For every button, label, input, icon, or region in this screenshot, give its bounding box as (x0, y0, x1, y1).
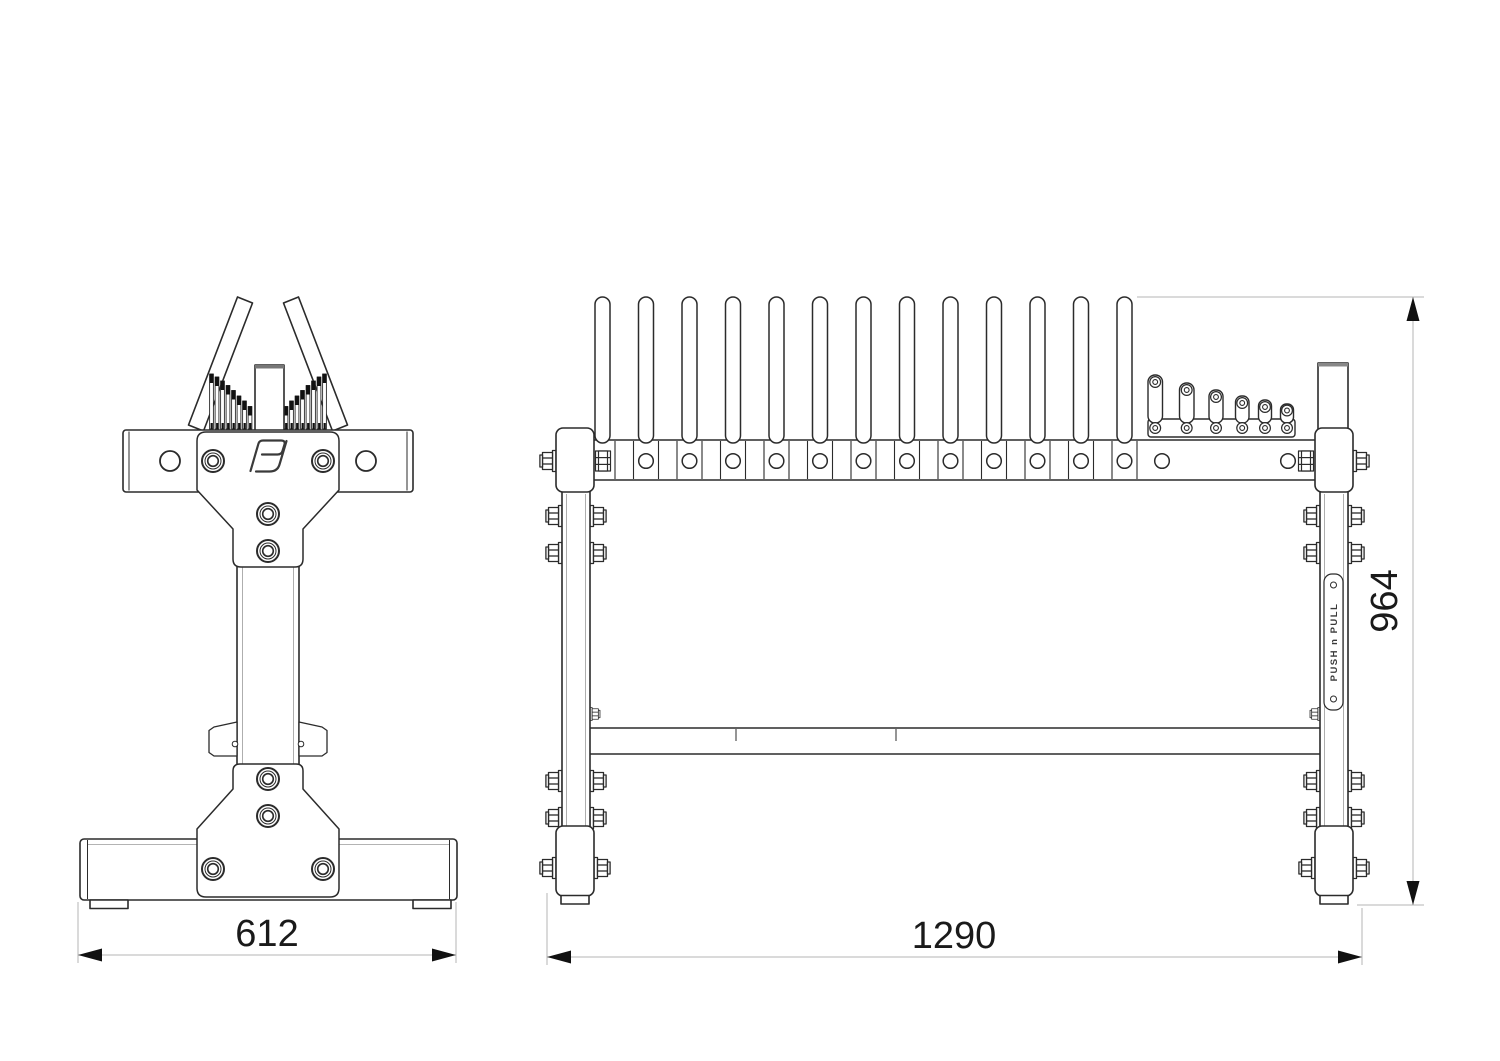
side-view (80, 297, 457, 909)
drawing-page: PUSH n PULL 612 1290 964 (0, 0, 1500, 1061)
dim-side-width-label: 612 (235, 913, 298, 955)
side-view-center-post (255, 365, 284, 433)
side-view-feet (90, 900, 451, 909)
side-view-lower-gusset (197, 764, 339, 897)
front-view-storage-pins (595, 297, 1132, 443)
brand-plate-label: PUSH n PULL (1329, 603, 1340, 682)
dim-front-width-label: 1290 (912, 915, 997, 957)
front-view: PUSH n PULL (540, 297, 1369, 904)
dim-front-height-label: 964 (1364, 569, 1406, 632)
side-view-pin-cluster-left (210, 374, 252, 429)
side-view-pin-cluster-right (284, 374, 326, 429)
technical-drawing: PUSH n PULL 612 1290 964 (0, 0, 1500, 1061)
front-view-left-upright (540, 428, 610, 904)
front-view-lower-rail (580, 728, 1330, 754)
front-view-change-plate-comb (1148, 375, 1295, 437)
front-view-right-post (1318, 363, 1348, 430)
